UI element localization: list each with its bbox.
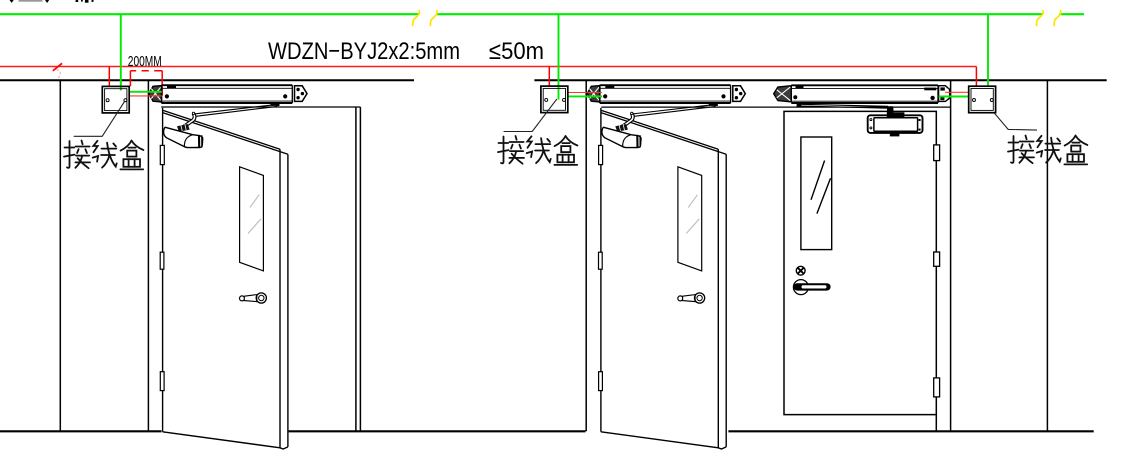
svg-text:200MM: 200MM <box>128 53 162 70</box>
svg-text:≤50m: ≤50m <box>489 38 544 65</box>
svg-text:WDZN−BYJ2x2:5mm: WDZN−BYJ2x2:5mm <box>268 38 460 65</box>
